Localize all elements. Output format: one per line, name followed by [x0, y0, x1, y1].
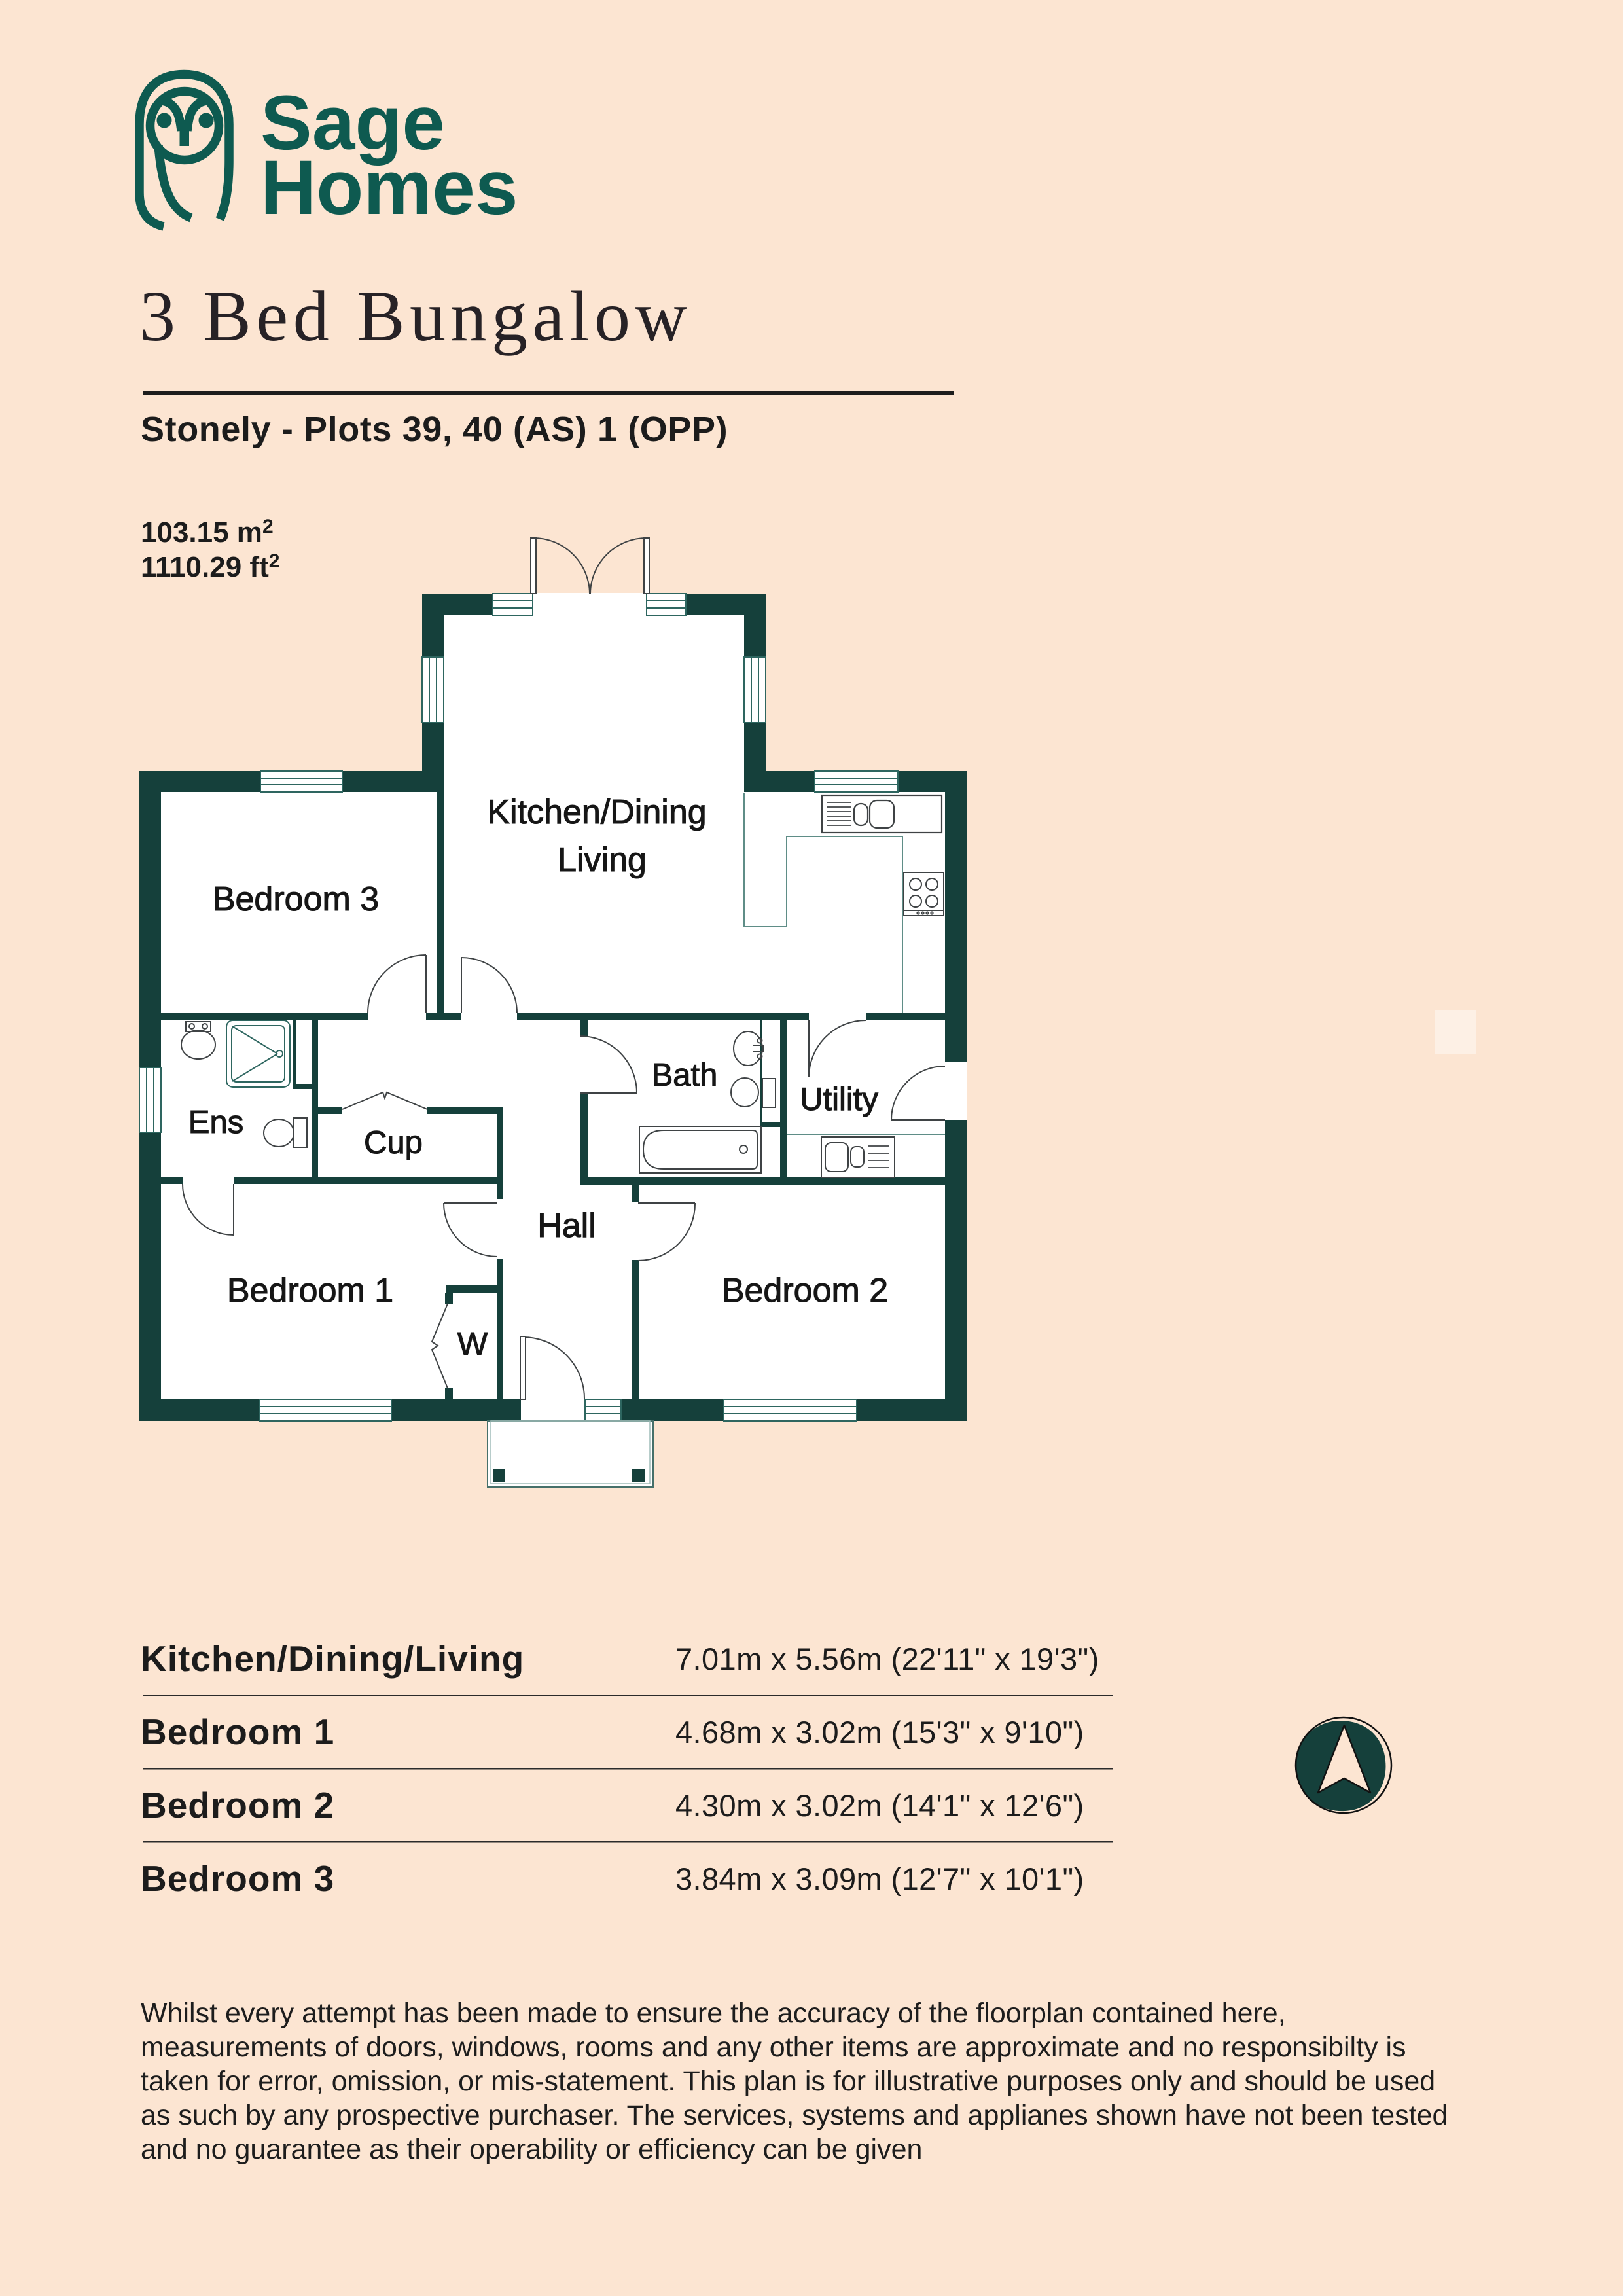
svg-text:103.15 m2: 103.15 m2: [141, 516, 274, 548]
svg-text:Kitchen/Dining: Kitchen/Dining: [487, 793, 706, 831]
svg-text:Ens: Ens: [188, 1105, 243, 1140]
svg-text:Utility: Utility: [800, 1082, 878, 1117]
svg-text:Hall: Hall: [537, 1207, 596, 1245]
svg-text:Bedroom 1: Bedroom 1: [227, 1272, 393, 1310]
svg-text:4.68m x 3.02m (15'3" x 9'10"): 4.68m x 3.02m (15'3" x 9'10"): [675, 1715, 1084, 1749]
svg-text:Living: Living: [558, 841, 647, 879]
svg-text:Bedroom 2: Bedroom 2: [141, 1785, 334, 1825]
svg-text:Bedroom 3: Bedroom 3: [213, 880, 379, 918]
svg-text:Bedroom 3: Bedroom 3: [141, 1858, 334, 1899]
svg-text:W: W: [457, 1327, 488, 1362]
svg-text:Bedroom 1: Bedroom 1: [141, 1712, 334, 1752]
svg-text:3.84m x 3.09m (12'7" x 10'1"): 3.84m x 3.09m (12'7" x 10'1"): [675, 1861, 1084, 1896]
svg-text:1110.29 ft2: 1110.29 ft2: [141, 550, 279, 583]
svg-text:4.30m x 3.02m (14'1" x 12'6"): 4.30m x 3.02m (14'1" x 12'6"): [675, 1788, 1084, 1823]
svg-text:and no guarantee as their oper: and no guarantee as their operability or…: [141, 2134, 922, 2165]
svg-text:Kitchen/Dining/Living: Kitchen/Dining/Living: [141, 1638, 524, 1679]
svg-text:Stonely - Plots 39, 40 (AS) 1: Stonely - Plots 39, 40 (AS) 1 (OPP): [141, 410, 728, 449]
svg-text:measurements of doors, windows: measurements of doors, windows, rooms an…: [141, 2032, 1406, 2063]
svg-text:Homes: Homes: [260, 145, 518, 231]
svg-text:Bath: Bath: [652, 1058, 718, 1093]
svg-text:taken for error, omission, or: taken for error, omission, or mis-statem…: [141, 2066, 1435, 2097]
svg-text:Whilst every attempt has been: Whilst every attempt has been made to en…: [141, 1998, 1286, 2029]
svg-text:3 Bed Bungalow: 3 Bed Bungalow: [139, 276, 692, 356]
svg-text:7.01m x 5.56m (22'11" x 19'3"): 7.01m x 5.56m (22'11" x 19'3"): [675, 1641, 1099, 1676]
svg-text:as such by any prospective pur: as such by any prospective purchaser. Th…: [141, 2100, 1448, 2131]
svg-text:Cup: Cup: [364, 1125, 423, 1160]
svg-text:Bedroom 2: Bedroom 2: [722, 1272, 888, 1310]
